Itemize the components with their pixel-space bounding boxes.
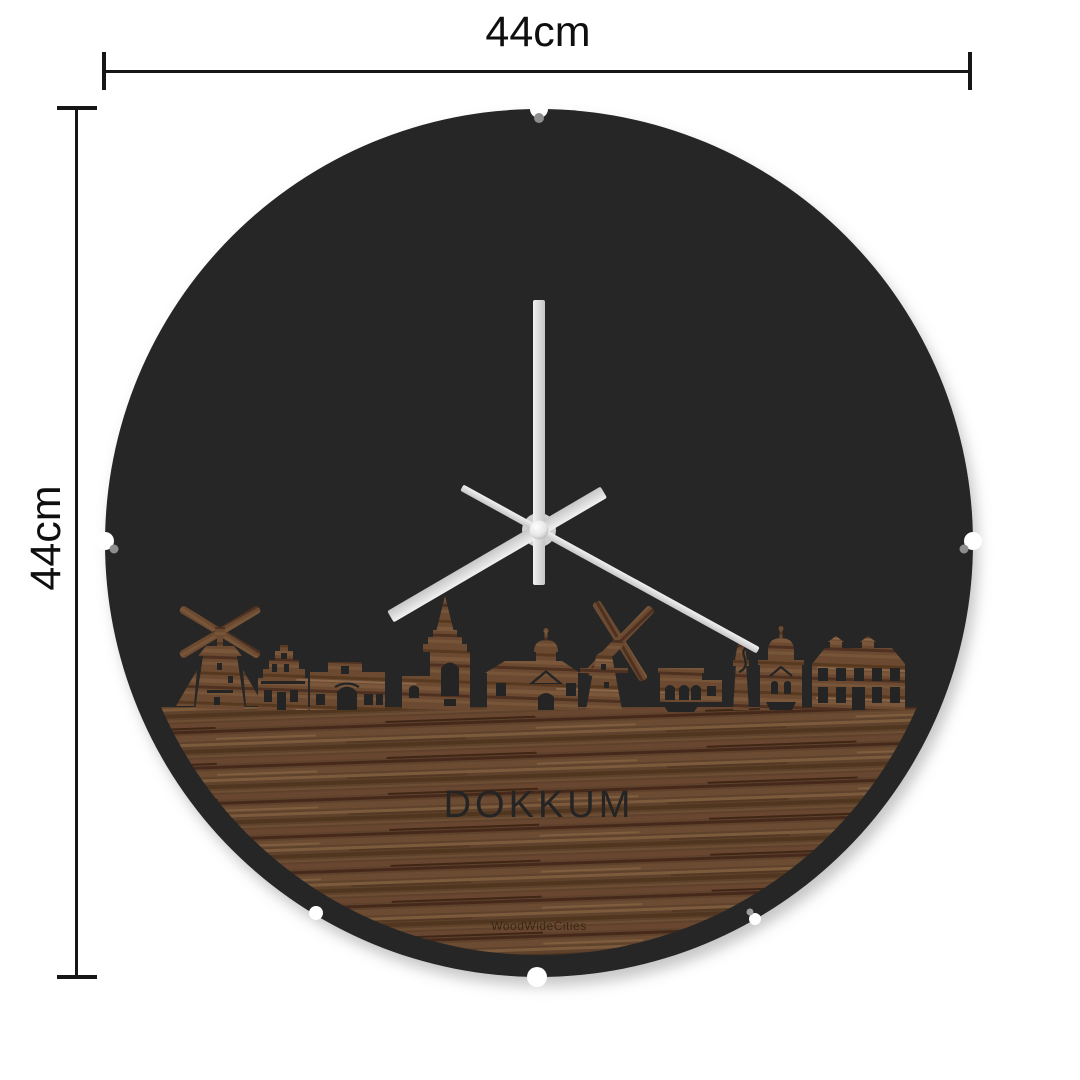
height-dimension-line (75, 108, 78, 978)
notch-right-nub (960, 545, 969, 554)
notch-bottom-left (309, 906, 323, 920)
width-dimension-tick-left (102, 52, 106, 90)
height-dimension-tick-bottom (57, 975, 97, 979)
height-dimension-tick-top (57, 106, 97, 110)
city-name-cutout: DOKKUM (444, 784, 635, 826)
notch-top-nub (534, 113, 544, 123)
notch-bottom (527, 967, 547, 987)
brand-watermark: WoodWideCities (491, 919, 586, 933)
notch-bottom-right-nub (747, 909, 754, 916)
skyline-clock-product: DOKKUM WoodWideCities (0, 0, 1080, 1080)
width-dimension-line (104, 70, 972, 73)
notch-left-nub (110, 545, 119, 554)
clock-hub-cap (530, 521, 549, 540)
minute-hand (533, 300, 545, 585)
height-dimension-label: 44cm (23, 438, 69, 638)
boat-cutout (662, 703, 700, 712)
width-dimension-tick-right (968, 52, 972, 90)
width-dimension-label: 44cm (438, 8, 638, 57)
product-dimension-diagram: 44cm 44cm (0, 0, 1080, 1080)
